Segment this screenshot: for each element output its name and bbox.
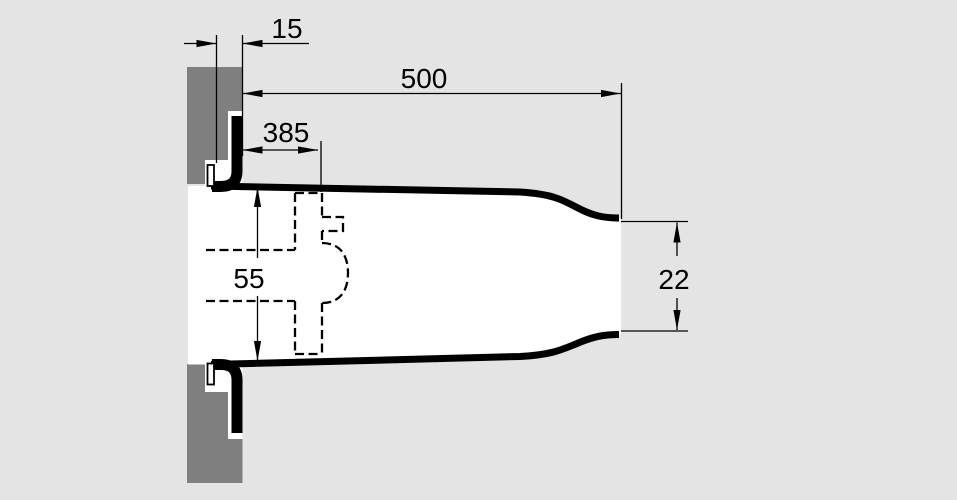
fastener-clip-bottom [208, 364, 215, 385]
fastener-clip-top [208, 165, 215, 186]
technical-drawing-canvas: 15 500 385 55 [0, 0, 957, 500]
dim-385-label: 385 [263, 117, 310, 148]
cross-section-drawing: 15 500 385 55 [0, 0, 957, 500]
dim-15-label: 15 [271, 13, 302, 44]
dim-22-label: 22 [658, 264, 689, 295]
dim-55-label: 55 [233, 263, 264, 294]
dim-500-label: 500 [401, 63, 448, 94]
